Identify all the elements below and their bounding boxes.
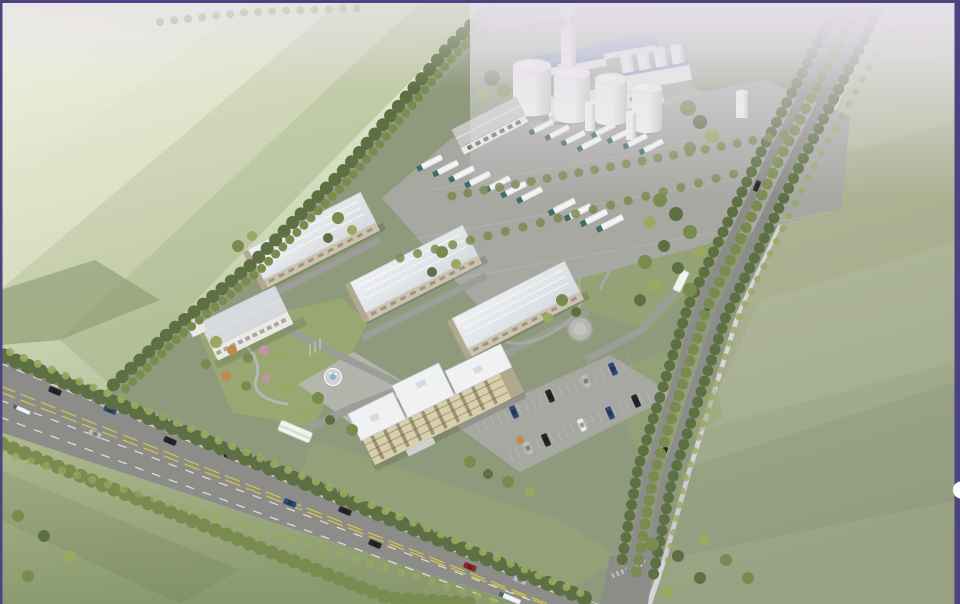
tree bbox=[22, 570, 34, 582]
tree-autumn bbox=[262, 374, 270, 382]
tree bbox=[451, 259, 461, 269]
aerial-rendering bbox=[0, 0, 960, 604]
tree bbox=[658, 240, 670, 252]
tree bbox=[502, 476, 514, 488]
tree bbox=[323, 233, 333, 243]
tree bbox=[672, 550, 684, 562]
tree bbox=[645, 537, 659, 551]
tree bbox=[649, 280, 661, 292]
tree bbox=[464, 456, 476, 468]
tree bbox=[694, 246, 706, 258]
tree bbox=[436, 246, 448, 258]
frame-border-right bbox=[955, 0, 960, 604]
slide-canvas bbox=[0, 0, 960, 604]
tree bbox=[669, 207, 683, 221]
tree bbox=[232, 240, 244, 252]
frame-border-left bbox=[0, 0, 3, 604]
tree-autumn bbox=[227, 345, 237, 355]
tree bbox=[277, 351, 287, 361]
tree bbox=[720, 554, 732, 566]
circular-plaza bbox=[568, 317, 592, 341]
tree bbox=[281, 383, 291, 393]
tree bbox=[64, 550, 76, 562]
tree bbox=[638, 255, 652, 269]
tree bbox=[201, 359, 211, 369]
tree bbox=[683, 225, 697, 239]
tree bbox=[332, 212, 344, 224]
tree bbox=[634, 294, 646, 306]
tree bbox=[210, 336, 222, 348]
tree bbox=[347, 225, 357, 235]
tree bbox=[644, 216, 656, 228]
tree bbox=[325, 415, 335, 425]
tree bbox=[543, 313, 553, 323]
tree bbox=[38, 530, 50, 542]
tree bbox=[742, 572, 754, 584]
tree bbox=[525, 487, 535, 497]
tree bbox=[346, 424, 358, 436]
tree bbox=[571, 307, 581, 317]
tree bbox=[243, 353, 253, 363]
tree bbox=[694, 572, 706, 584]
tree bbox=[683, 283, 697, 297]
fountain bbox=[325, 369, 342, 386]
tree bbox=[662, 586, 674, 598]
tree bbox=[483, 469, 493, 479]
tree-autumn bbox=[259, 345, 269, 355]
tree bbox=[241, 381, 251, 391]
tree bbox=[672, 262, 684, 274]
tree bbox=[698, 534, 710, 546]
tree-autumn bbox=[516, 436, 524, 444]
tree bbox=[312, 392, 324, 404]
frame-border-top bbox=[0, 0, 960, 3]
tree bbox=[301, 409, 311, 419]
tree bbox=[247, 231, 257, 241]
tree bbox=[427, 267, 437, 277]
tree bbox=[556, 294, 568, 306]
tree bbox=[12, 510, 24, 522]
tree-autumn bbox=[221, 371, 231, 381]
